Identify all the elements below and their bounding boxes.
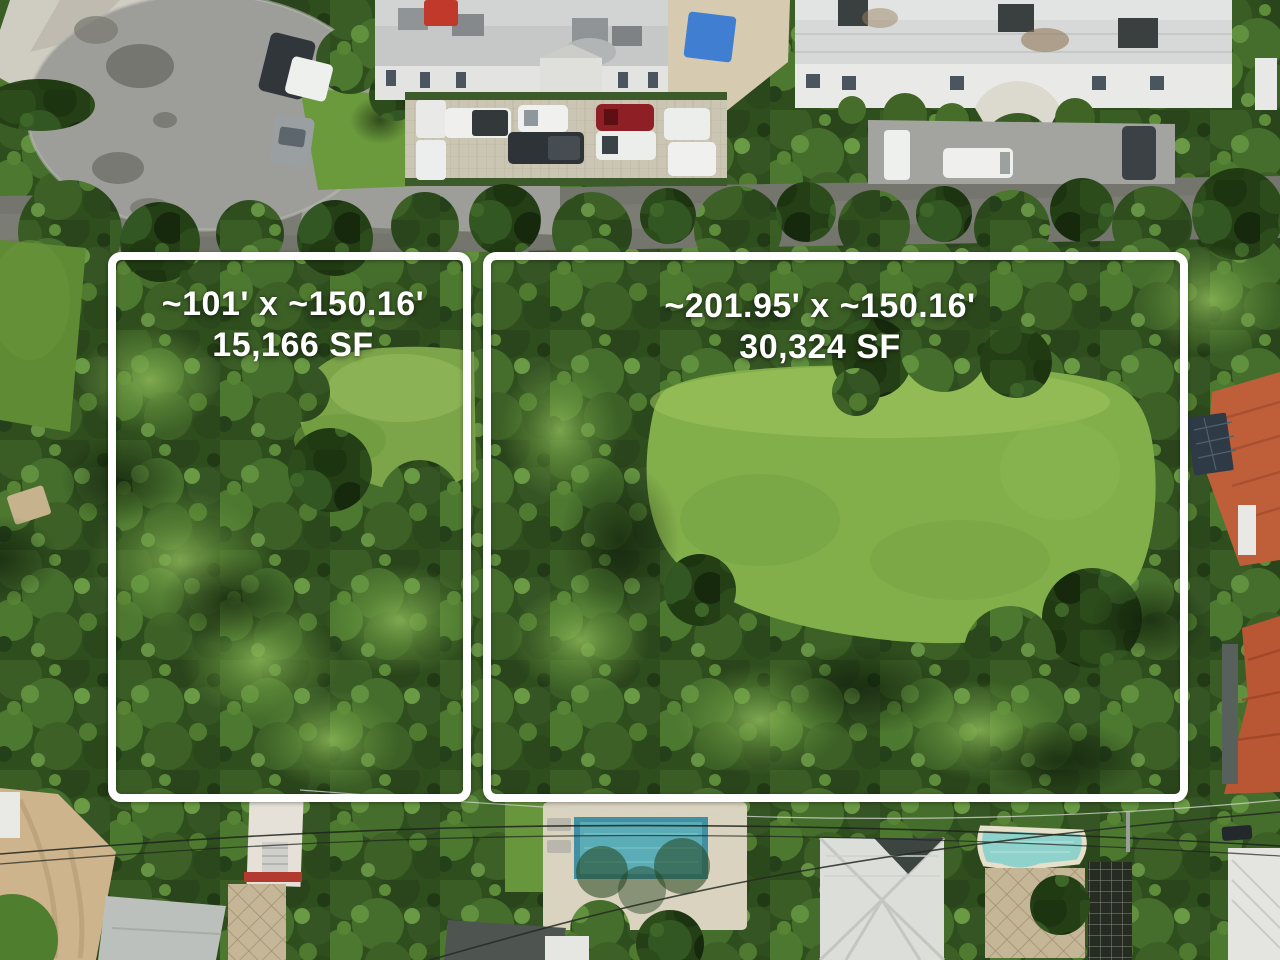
rooftop-ac-unit [398, 8, 428, 30]
parcel-left-label: ~101' x ~150.16' 15,166 SF [162, 284, 424, 366]
parcel-right-area: 30,324 SF [664, 326, 975, 368]
parcel-left-area: 15,166 SF [162, 324, 424, 366]
parcel-left-dimensions: ~101' x ~150.16' [162, 284, 424, 324]
lounge-chair [547, 818, 571, 831]
white-hip-roof-house [820, 838, 944, 960]
blue-tarp [683, 11, 736, 63]
parking-area [405, 92, 727, 186]
aerial-photo [0, 0, 1280, 960]
car-on-lane [1222, 825, 1253, 841]
dark-car [1122, 126, 1156, 180]
red-awning [424, 0, 458, 26]
street-scene-top [0, 0, 1280, 284]
chimney [838, 0, 868, 26]
parcel-right-dimensions: ~201.95' x ~150.16' [664, 286, 975, 326]
parcel-right-label: ~201.95' x ~150.16' 30,324 SF [664, 286, 975, 368]
far-right-building [1228, 848, 1280, 960]
aerial-photo-stage: ~101' x ~150.16' 15,166 SF ~201.95' x ~1… [0, 0, 1280, 960]
